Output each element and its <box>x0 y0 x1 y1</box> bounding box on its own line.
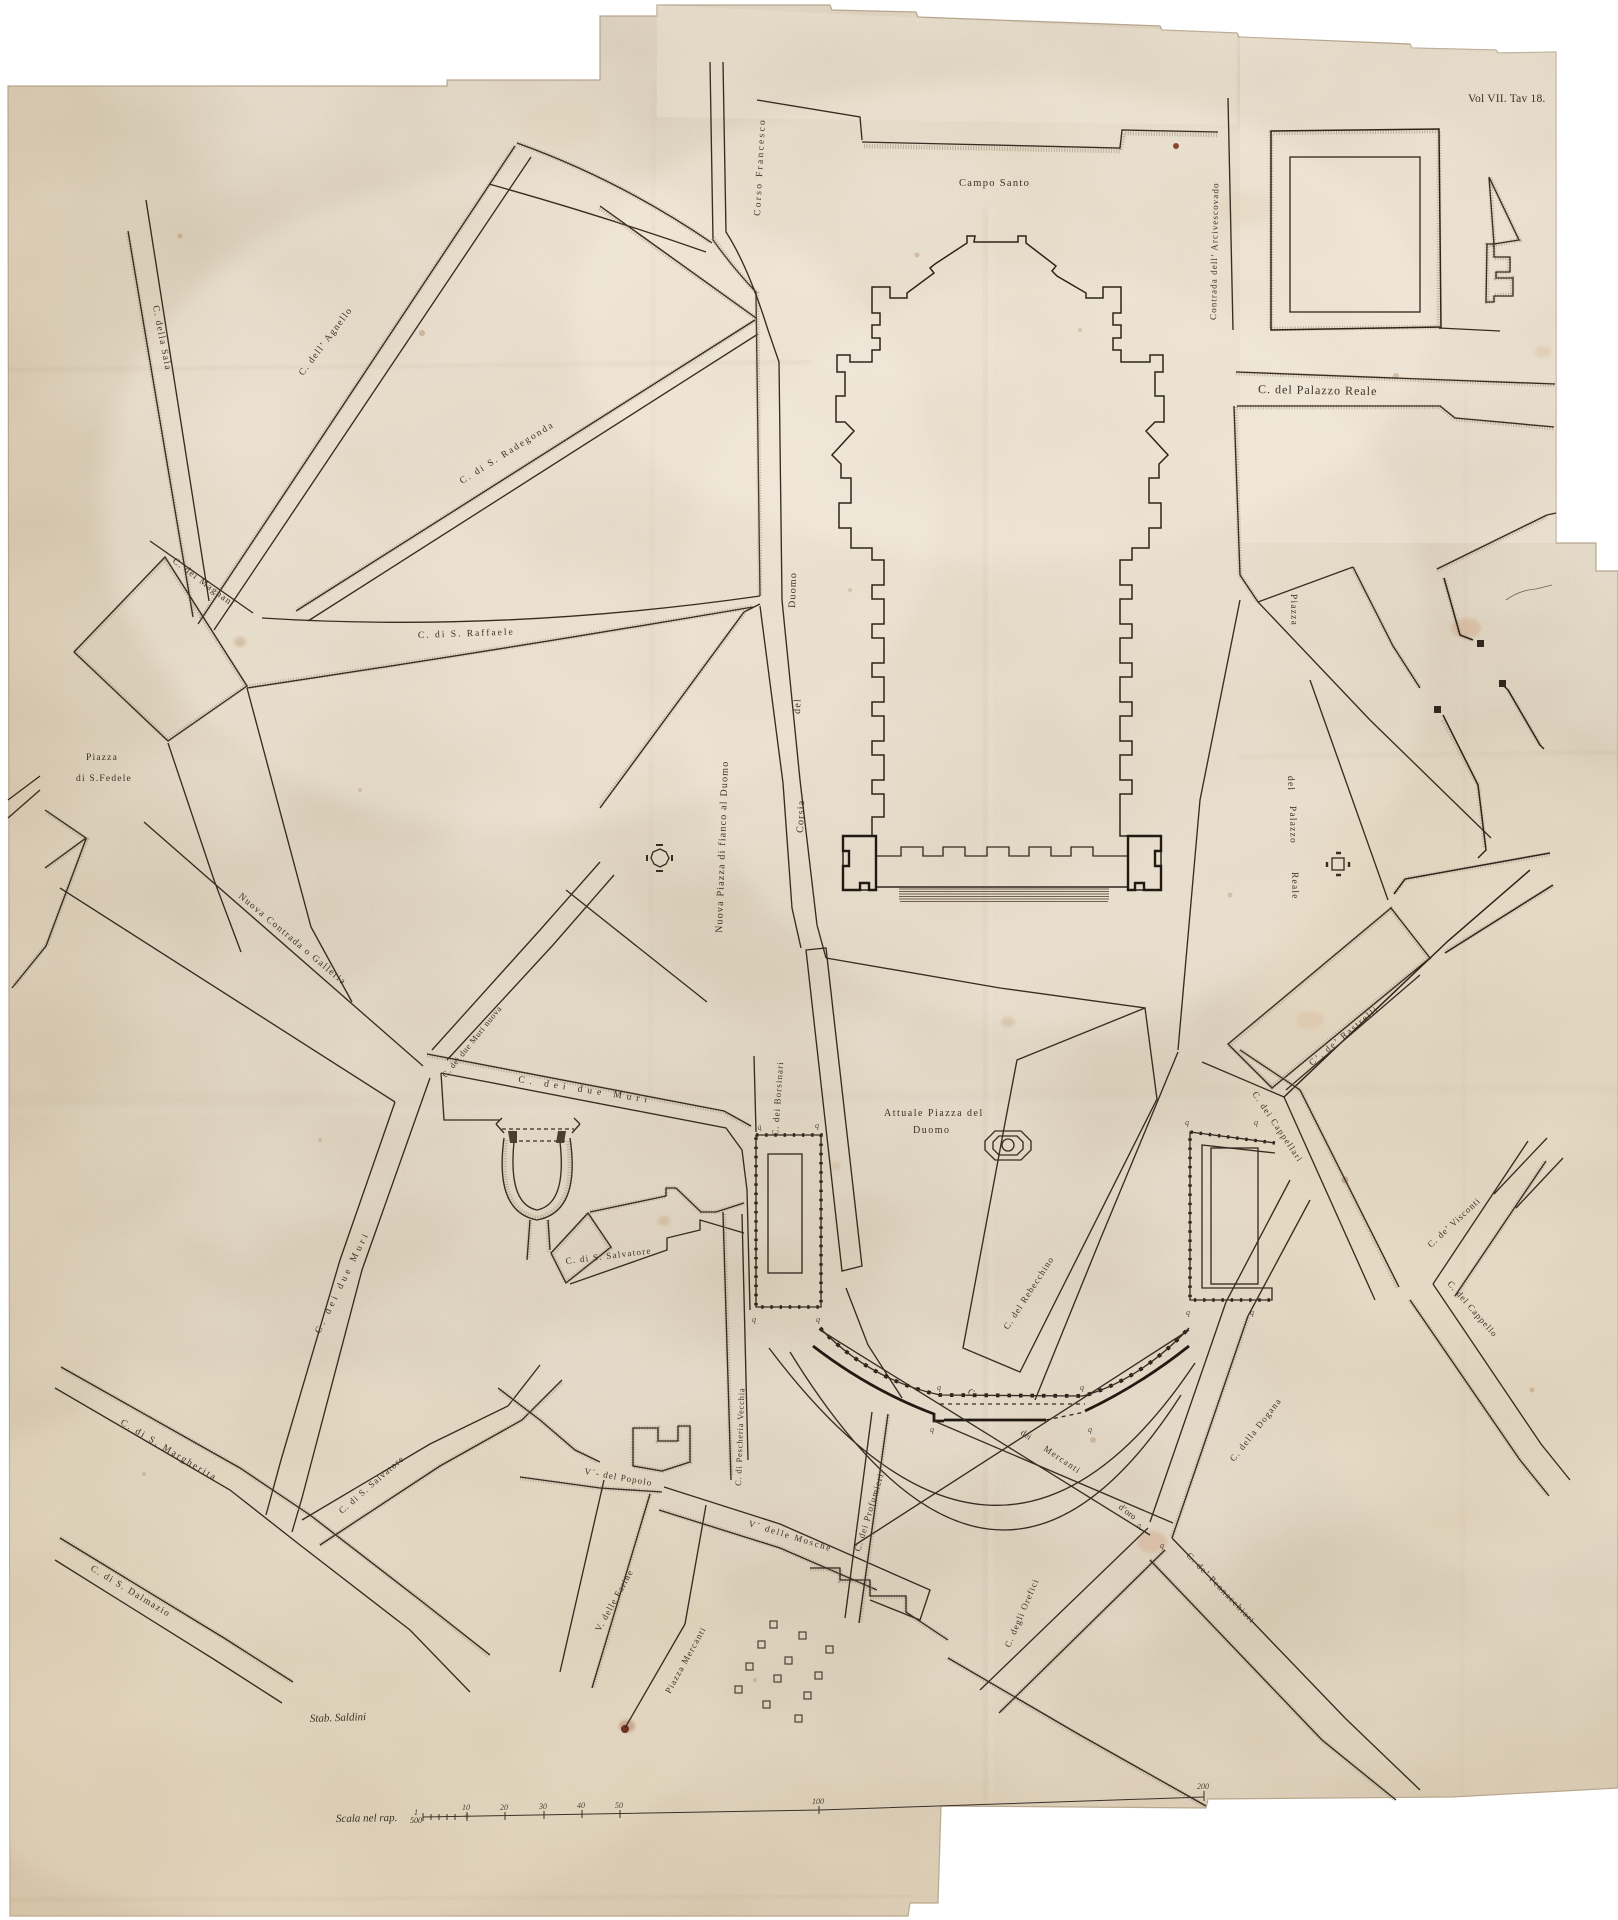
svg-text:Reale: Reale <box>1289 872 1299 900</box>
svg-text:q: q <box>1185 1118 1189 1127</box>
svg-text:Attuale Piazza del: Attuale Piazza del <box>884 1108 984 1119</box>
svg-text:Piazza: Piazza <box>1288 594 1299 626</box>
svg-text:Duomo: Duomo <box>913 1125 951 1136</box>
svg-text:500: 500 <box>410 1816 422 1825</box>
svg-text:20: 20 <box>500 1803 508 1812</box>
svg-text:200: 200 <box>1197 1782 1209 1791</box>
svg-text:C. del Palazzo Reale: C. del Palazzo Reale <box>1258 382 1378 398</box>
svg-text:q: q <box>815 1121 819 1130</box>
svg-text:di S.Fedele: di S.Fedele <box>76 774 132 784</box>
svg-text:Stab. Saldini: Stab. Saldini <box>310 1711 367 1725</box>
svg-text:q: q <box>1254 1118 1258 1127</box>
svg-text:Piazza: Piazza <box>86 753 118 763</box>
svg-text:50: 50 <box>615 1801 623 1810</box>
svg-text:q: q <box>1186 1308 1190 1317</box>
svg-text:q: q <box>930 1425 934 1434</box>
svg-text:q: q <box>1088 1425 1092 1434</box>
svg-text:Palazzo: Palazzo <box>1287 806 1298 844</box>
svg-text:q: q <box>752 1315 756 1324</box>
svg-text:100: 100 <box>812 1797 824 1806</box>
svg-text:q: q <box>937 1383 941 1392</box>
svg-text:q: q <box>816 1315 820 1324</box>
svg-text:Corsia: Corsia <box>795 799 807 833</box>
svg-text:del: del <box>1285 776 1295 791</box>
svg-text:30: 30 <box>538 1802 547 1811</box>
svg-text:40: 40 <box>577 1801 585 1810</box>
svg-text:Scala nel rap.: Scala nel rap. <box>336 1812 398 1825</box>
svg-text:del: del <box>792 698 804 714</box>
svg-text:Duomo: Duomo <box>787 572 799 608</box>
svg-text:Campo Santo: Campo Santo <box>959 178 1030 189</box>
svg-text:q: q <box>1137 1521 1141 1530</box>
svg-text:10: 10 <box>462 1803 470 1812</box>
svg-text:Vol VII. Tav 18.: Vol VII. Tav 18. <box>1468 93 1545 105</box>
svg-text:q: q <box>1080 1383 1084 1392</box>
